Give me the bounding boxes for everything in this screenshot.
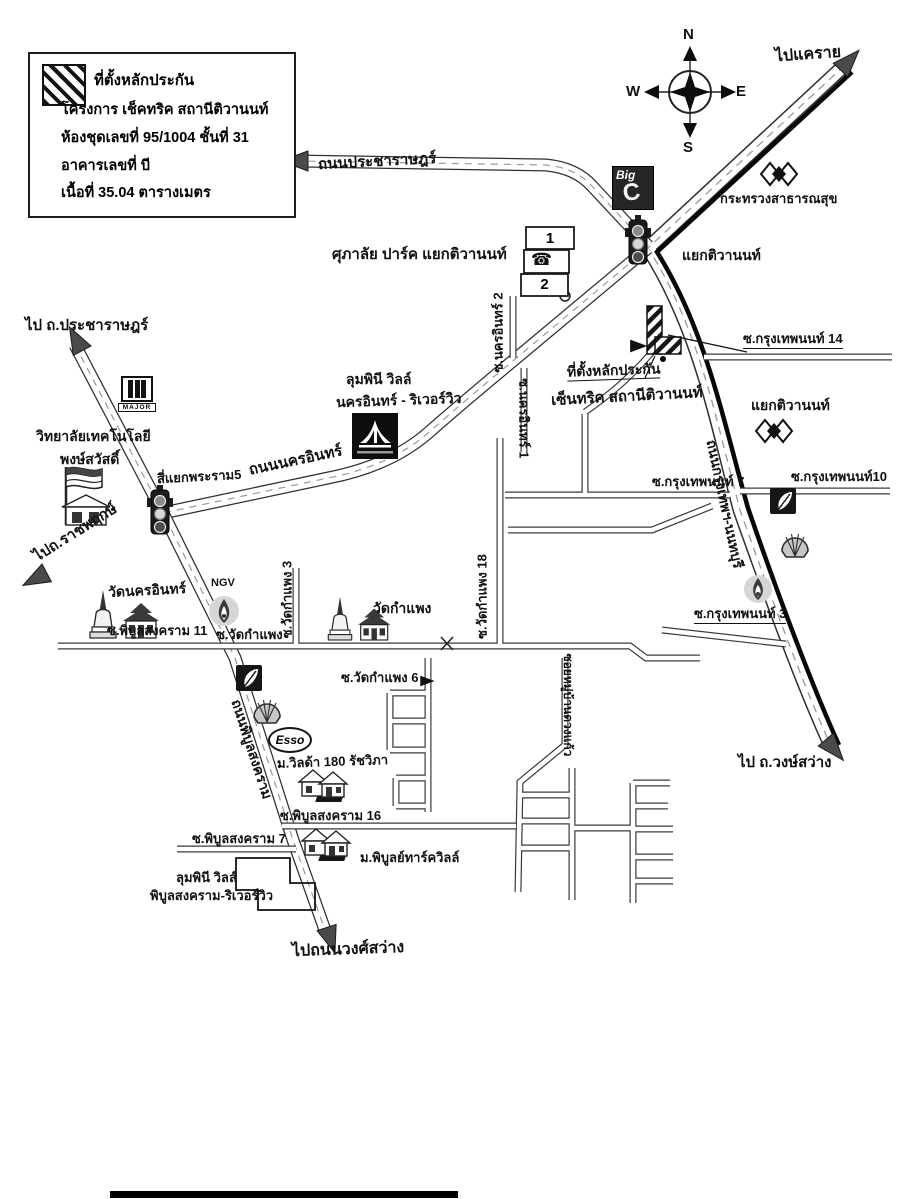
label-ministry-health: กระทรวงสาธารณสุข: [720, 192, 837, 207]
label-to-wong-sawang-road: ไปถนนวงศ์สว่าง: [292, 939, 405, 961]
compass-n: N: [683, 26, 694, 43]
arrow-ratchaphruek: [18, 564, 51, 594]
legend-title: ที่ตั้งหลักประกัน: [94, 68, 194, 92]
label-college-2: พงษ์สวัสดิ์: [60, 451, 119, 467]
label-yaek-tiwanon-1: แยกติวานนท์: [682, 247, 761, 263]
label-soi-ktn-10: ซ.กรุงเทพนนท์10: [791, 470, 887, 485]
major-cineplex-logo: MAJOR: [118, 376, 156, 412]
label-soi-nakhon-in-1: ซ.นครอินทร์ 1: [516, 372, 531, 464]
shell-icon-2: [254, 700, 280, 723]
label-lumpini-phibun-1: ลุมพินี วิลล์: [176, 871, 237, 886]
ngv-flame-icon: [209, 596, 239, 626]
lumpini-logo-icon: [352, 413, 398, 459]
map-canvas: ที่ตั้งหลักประกัน โครงการ เช็คทริค สถานี…: [0, 0, 897, 1199]
label-college-1: วิทยาลัยเทคโนโลยี: [36, 428, 151, 444]
label-soi-nakhon-in-2: ซ.นครอินทร์ 2: [492, 286, 507, 378]
label-yaek-tiwanon-2: แยกติวานนท์: [751, 397, 830, 413]
label-soi-pbs-16: ซ.พิบูลสงคราม 16: [280, 809, 381, 824]
legend-area: เนื้อที่ 35.04 ตารางเมตร: [61, 181, 211, 204]
traffic-light-rama5-icon: [147, 485, 173, 534]
arrow-property-pointer: [630, 340, 646, 352]
label-soi-pbs-11: ซ.พิบูลสงคราม 11: [107, 624, 207, 639]
label-soi-ktn-3: ซ.กรุงเทพนนท์ 3: [694, 607, 786, 624]
major-word: MAJOR: [118, 403, 156, 412]
big-c-letter: C: [621, 178, 642, 208]
compass-rose-icon: [644, 46, 736, 138]
tiwanon-junction-logo-icon: [756, 420, 792, 442]
label-soi-ktn-14: ซ.กรุงเทพนนท์ 14: [743, 332, 843, 349]
label-wat-kamphaeng: วัดกำแพง: [373, 600, 431, 616]
scan-artifact-bar: [110, 1191, 458, 1198]
label-soi-pbs-7: ซ.พิบูลสงคราม 7: [192, 832, 286, 847]
legend-building: อาคารเลขที่ บี: [61, 154, 150, 177]
label-soi-wat-kamphaeng: ซ.วัดกำแพง: [216, 628, 283, 643]
label-lumpini-phibun-2: พิบูลสงคราม-ริเวอร์วิว: [150, 889, 273, 904]
esso-logo: Esso: [268, 727, 312, 753]
legend-unit: ห้องชุดเลขที่ 95/1004 ชั้นที่ 31: [61, 126, 249, 149]
villa-houses-icon: [299, 770, 347, 802]
esso-word: Esso: [276, 733, 305, 747]
label-property-title: ที่ตั้งหลักประกัน: [567, 360, 661, 381]
phibun-houses-icon: [302, 829, 350, 861]
label-to-pracharat: ไป ถ.ประชาราษฎร์: [25, 317, 148, 334]
compass-e: E: [736, 83, 746, 100]
phone-icon: ☎: [531, 250, 552, 270]
compass-s: S: [683, 139, 693, 156]
label-supalai-park: ศุภาลัย ปาร์ค แยกติวานนท์: [332, 246, 507, 263]
traffic-light-tiwanon-icon: [625, 215, 651, 264]
major-columns-icon: [121, 376, 153, 402]
label-soi-ktn-7: ซ.กรุงเทพนนท์ 7: [652, 475, 744, 490]
bangchak-icon: [770, 488, 796, 514]
legend-box: ที่ตั้งหลักประกัน โครงการ เช็คทริค สถานี…: [28, 52, 296, 218]
ministry-health-logo-icon: [761, 163, 797, 185]
label-soi-wk-18: ซ.วัดกำแพง 18: [476, 550, 491, 642]
compass-w: W: [626, 83, 640, 100]
label-to-wong-sawang: ไป ถ.วงษ์สว่าง: [738, 754, 831, 771]
big-c-logo: Big C: [612, 166, 654, 210]
legend-project: โครงการ เช็คทริค สถานีติวานนท์: [61, 98, 268, 121]
supalai-building-1: 1: [526, 230, 574, 247]
ngv-label: NGV: [211, 577, 235, 590]
label-soi-wk-3: ซ.วัดกำแพง 3: [281, 553, 296, 645]
label-soi-wk-6: ซ.วัดกำแพง 6: [341, 671, 419, 686]
label-soi-muban: ซอยหมู่บ้านดวงแก้ว: [560, 635, 574, 775]
shell-icon: [782, 534, 808, 557]
supalai-building-2: 2: [521, 276, 568, 293]
label-phibun-ville: ม.พิบูลย์ทาร์ควิลล์: [360, 851, 459, 866]
label-lumpini-nakhon-in-1: ลุมพินี วิลล์: [346, 371, 412, 387]
